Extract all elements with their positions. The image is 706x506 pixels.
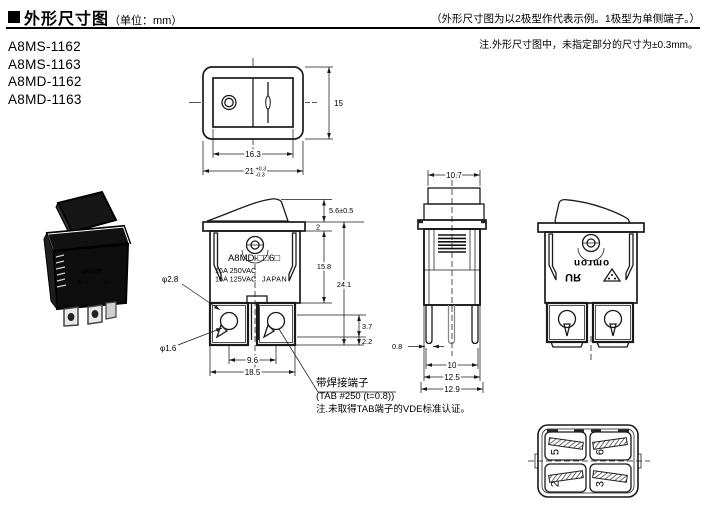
vde-triangle-mark <box>604 269 620 281</box>
section-marker-square <box>8 11 20 23</box>
front-view-outline <box>203 199 305 376</box>
dim-side-top-width: 10.7 <box>446 171 462 180</box>
dim-3-7: 3.7 <box>362 322 372 331</box>
page-title-text: 外形尺寸图 <box>24 11 109 28</box>
dim-terminal-thickness: 0.8 <box>392 342 402 351</box>
unit-label: （单位：mm） <box>109 15 182 27</box>
terminal-number-6: 6 <box>595 449 607 455</box>
front-view-dimensions: 5.6±0.5 2 15.8 24.1 3.7 2.2 9.6 18.5 φ2.… <box>160 200 396 393</box>
model-item: A8MD-1162 <box>8 73 82 91</box>
dim-side-w3: 12.9 <box>444 385 460 394</box>
product-photo: omron ®UL ◬ <box>20 183 148 325</box>
model-list: A8MS-1162 A8MS-1163 A8MD-1162 A8MD-1163 <box>8 38 82 108</box>
model-item: A8MS-1163 <box>8 56 82 74</box>
header-note: （外形尺寸图为以2极型作代表示例。1极型为单侧端子。） <box>431 11 700 26</box>
dim-flange: 2 <box>316 223 320 232</box>
rocker-switch-illustration: omron ®UL ◬ <box>44 192 130 326</box>
top-view-drawing: 16.3 21 +0.3 -0.3 15 <box>183 55 345 183</box>
bottom-view-outline <box>528 425 650 497</box>
dim-side-w1: 10 <box>448 361 457 370</box>
back-view-outline: omron ЯU <box>538 200 644 363</box>
bottom-view-drawing: 5 6 2 3 <box>528 413 664 506</box>
front-model-label: A8MD-□□6□ <box>228 253 280 264</box>
front-origin: JAPAN <box>262 275 287 284</box>
terminal-number-3: 3 <box>595 481 607 487</box>
tolerance-note: 注.外形尺寸图中，未指定部分的尺寸为±0.3mm。 <box>479 36 698 51</box>
back-view-drawing: omron ЯU <box>523 183 675 368</box>
dim-inner-width: 16.3 <box>245 150 261 159</box>
dim-side-w2: 12.5 <box>444 373 460 382</box>
terminal-number-2: 2 <box>550 481 562 487</box>
dim-2-2: 2.2 <box>362 337 372 346</box>
datasheet-page: 外形尺寸图（单位：mm） （外形尺寸图为以2极型作代表示例。1极型为单侧端子。）… <box>0 0 706 506</box>
front-rating2: 16A 125VAC <box>215 275 256 284</box>
side-view-drawing: 10.7 0.8 10 12.5 12.9 <box>388 160 516 408</box>
bottom-view-terminals: 5 6 2 3 <box>549 438 628 487</box>
model-item: A8MS-1162 <box>8 38 82 56</box>
dim-hole-large: φ2.8 <box>162 275 179 284</box>
dim-body-height: 15.8 <box>317 262 331 271</box>
svg-text:®UL: ®UL <box>78 279 91 287</box>
dim-hole-small: φ1.6 <box>160 344 177 353</box>
dim-total-height: 24.1 <box>337 280 351 289</box>
dim-outer-width: 21 <box>245 167 254 176</box>
header-rule <box>6 27 700 29</box>
terminal-number-5: 5 <box>550 449 562 455</box>
ul-mark: ЯU <box>565 271 581 283</box>
svg-text:◬: ◬ <box>103 279 108 285</box>
dim-terminal-pitch: 9.6 <box>247 356 259 365</box>
page-title: 外形尺寸图（单位：mm） <box>24 5 182 29</box>
side-view-outline <box>418 180 486 356</box>
top-view-outline <box>189 58 317 155</box>
dim-terminal-span: 18.5 <box>245 368 261 377</box>
dim-outer-tol-minus: -0.3 <box>256 173 265 179</box>
omron-logo: omron <box>573 257 609 268</box>
model-item: A8MD-1163 <box>8 91 82 109</box>
dim-rocker-height: 5.6±0.5 <box>329 206 353 215</box>
front-view-labels: A8MD-□□6□ 16A 250VAC 16A 125VAC JAPAN <box>215 253 287 284</box>
top-view-dimensions: 16.3 21 +0.3 -0.3 15 <box>203 67 343 179</box>
dim-height: 15 <box>334 99 343 108</box>
